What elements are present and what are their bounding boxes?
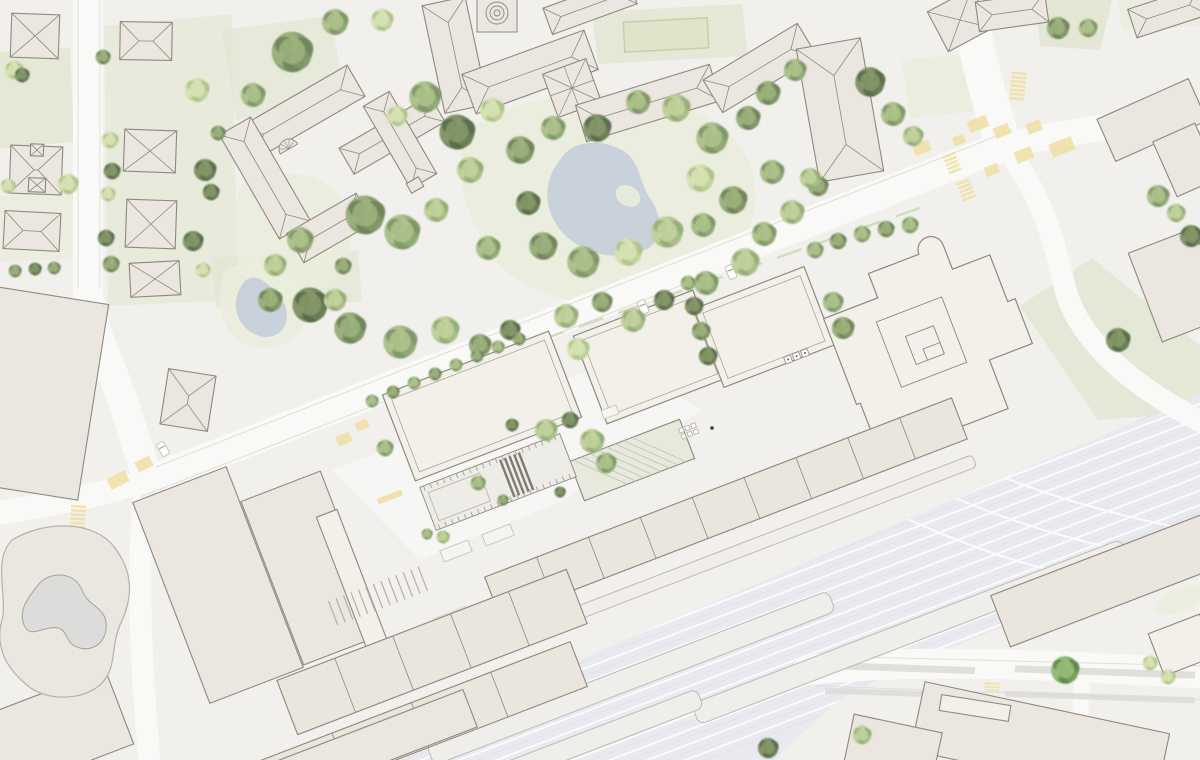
house-x — [129, 261, 181, 298]
house-x — [10, 13, 60, 59]
person-dot — [710, 426, 714, 430]
house — [160, 369, 216, 432]
house — [3, 211, 61, 252]
house — [125, 199, 177, 249]
garage — [28, 178, 45, 193]
dashes — [984, 682, 999, 691]
site-plan-canvas — [0, 0, 1200, 760]
house — [123, 129, 176, 173]
house — [120, 22, 173, 61]
manor-tower — [477, 0, 517, 32]
hedge-box — [623, 18, 708, 52]
garage — [30, 144, 43, 156]
site-plan-map — [0, 0, 1200, 760]
